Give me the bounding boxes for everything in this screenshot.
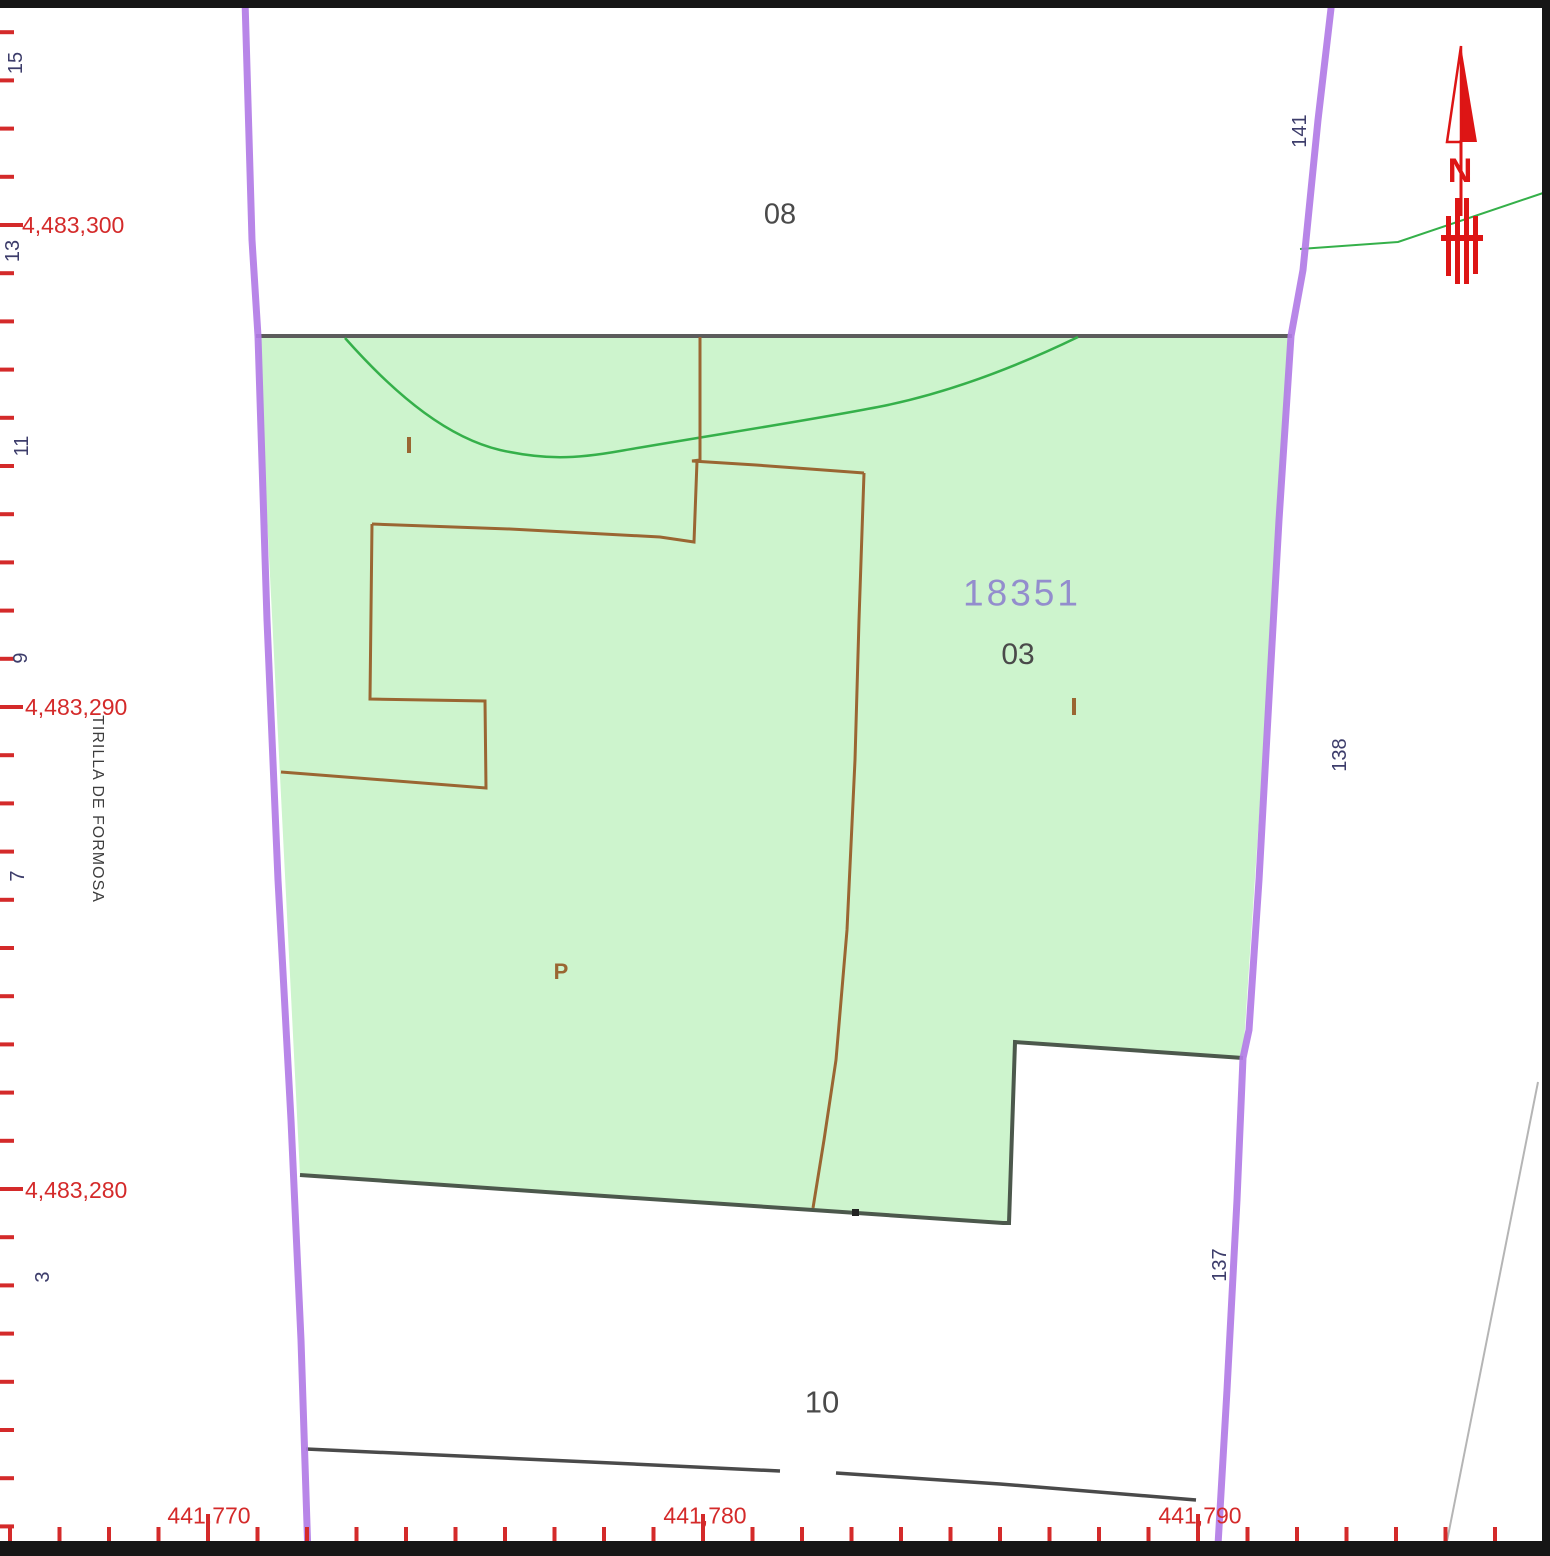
grid-tick: [58, 1527, 62, 1542]
frame-bottom: [0, 1541, 1550, 1556]
street-number: 9: [11, 652, 31, 663]
grid-tick: [850, 1527, 854, 1542]
grid-tick: [0, 705, 23, 709]
y-coord-label: 4,483,290: [25, 696, 127, 719]
gray-boundary-line: [1447, 1082, 1538, 1541]
grid-tick: [0, 609, 14, 613]
street-number: 11: [12, 436, 32, 457]
grid-tick: [1246, 1527, 1250, 1542]
grid-tick: [0, 30, 14, 34]
grid-tick: [602, 1527, 606, 1542]
cadastral-map: 4,483,300 4,483,290 4,483,280 441,770 44…: [0, 0, 1550, 1556]
parcel-10-boundary-b: [836, 1473, 1196, 1500]
parcel-18351-area: [258, 336, 1291, 1223]
street-name-label: TIRILLA DE FORMOSA: [89, 715, 105, 903]
subparcel-label: 03: [1001, 640, 1034, 670]
grid-tick: [1493, 1527, 1497, 1542]
grid-tick: [0, 416, 14, 420]
x-coord-label: 441,790: [1158, 1505, 1241, 1528]
grid-tick: [949, 1527, 953, 1542]
grid-tick: [1444, 1527, 1448, 1542]
grid-tick: [0, 78, 14, 82]
street-number: 7: [8, 870, 28, 881]
grid-tick: [553, 1527, 557, 1542]
grid-tick: [0, 1428, 14, 1432]
grid-tick: [751, 1527, 755, 1542]
grid-tick: [0, 175, 14, 179]
grid-tick: [0, 512, 14, 516]
y-coord-label: 4,483,280: [25, 1179, 127, 1202]
grid-tick: [355, 1527, 359, 1542]
grid-tick: [1048, 1527, 1052, 1542]
grid-tick: [1394, 1527, 1398, 1542]
grid-tick: [0, 319, 14, 323]
grid-tick: [652, 1527, 656, 1542]
grid-tick: [1295, 1527, 1299, 1542]
grid-tick: [0, 850, 14, 854]
north-label: N: [1448, 154, 1473, 188]
grid-tick: [0, 1380, 14, 1384]
grid-tick: [0, 1139, 14, 1143]
street-number: 138: [1330, 738, 1350, 771]
grid-tick: [0, 994, 14, 998]
frame-top: [0, 0, 1550, 8]
grid-tick: [0, 1091, 14, 1095]
grid-tick: [503, 1527, 507, 1542]
grid-tick: [1097, 1527, 1101, 1542]
x-coord-label: 441,780: [663, 1505, 746, 1528]
grid-tick: [1147, 1527, 1151, 1542]
grid-tick: [0, 560, 14, 564]
grid-tick: [0, 1235, 14, 1239]
grid-tick: [157, 1527, 161, 1542]
parcel-08-label: 08: [764, 201, 796, 230]
x-coord-label: 441,770: [167, 1505, 250, 1528]
green-feature-line-ne: [1300, 191, 1549, 249]
grid-tick: [1345, 1527, 1349, 1542]
grid-tick: [454, 1527, 458, 1542]
street-number: 13: [3, 240, 23, 262]
parcel-10-label: 10: [805, 1387, 839, 1418]
street-number: 137: [1210, 1248, 1230, 1281]
grid-tick: [800, 1527, 804, 1542]
grid-tick: [256, 1527, 260, 1542]
grid-tick: [0, 271, 14, 275]
grid-tick: [0, 753, 14, 757]
y-coord-label: 4,483,300: [22, 214, 124, 237]
grid-tick: [0, 223, 23, 227]
street-number: 15: [6, 52, 26, 74]
parcel-id-label: 18351: [963, 575, 1081, 612]
grid-tick: [8, 1527, 12, 1542]
grid-tick: [0, 368, 14, 372]
grid-tick: [0, 1332, 14, 1336]
grid-tick: [0, 127, 14, 131]
grid-tick: [0, 1476, 14, 1480]
grid-tick: [0, 801, 14, 805]
grid-tick: [899, 1527, 903, 1542]
grid-tick: [305, 1527, 309, 1542]
parcel-10-boundary-a: [306, 1449, 780, 1471]
map-canvas: [0, 0, 1550, 1556]
grid-tick: [998, 1527, 1002, 1542]
grid-tick: [404, 1527, 408, 1542]
street-number: 3: [33, 1271, 53, 1282]
boundary-vertex-dot: [852, 1209, 859, 1216]
cultivation-p-label: P: [554, 961, 569, 983]
grid-tick: [0, 1042, 14, 1046]
grid-tick: [0, 464, 14, 468]
grid-tick: [0, 946, 14, 950]
grid-tick: [0, 1283, 14, 1287]
street-number: 141: [1290, 114, 1310, 147]
grid-tick: [107, 1527, 111, 1542]
grid-tick: [0, 898, 14, 902]
grid-tick: [0, 1187, 23, 1191]
frame-right: [1542, 0, 1550, 1556]
